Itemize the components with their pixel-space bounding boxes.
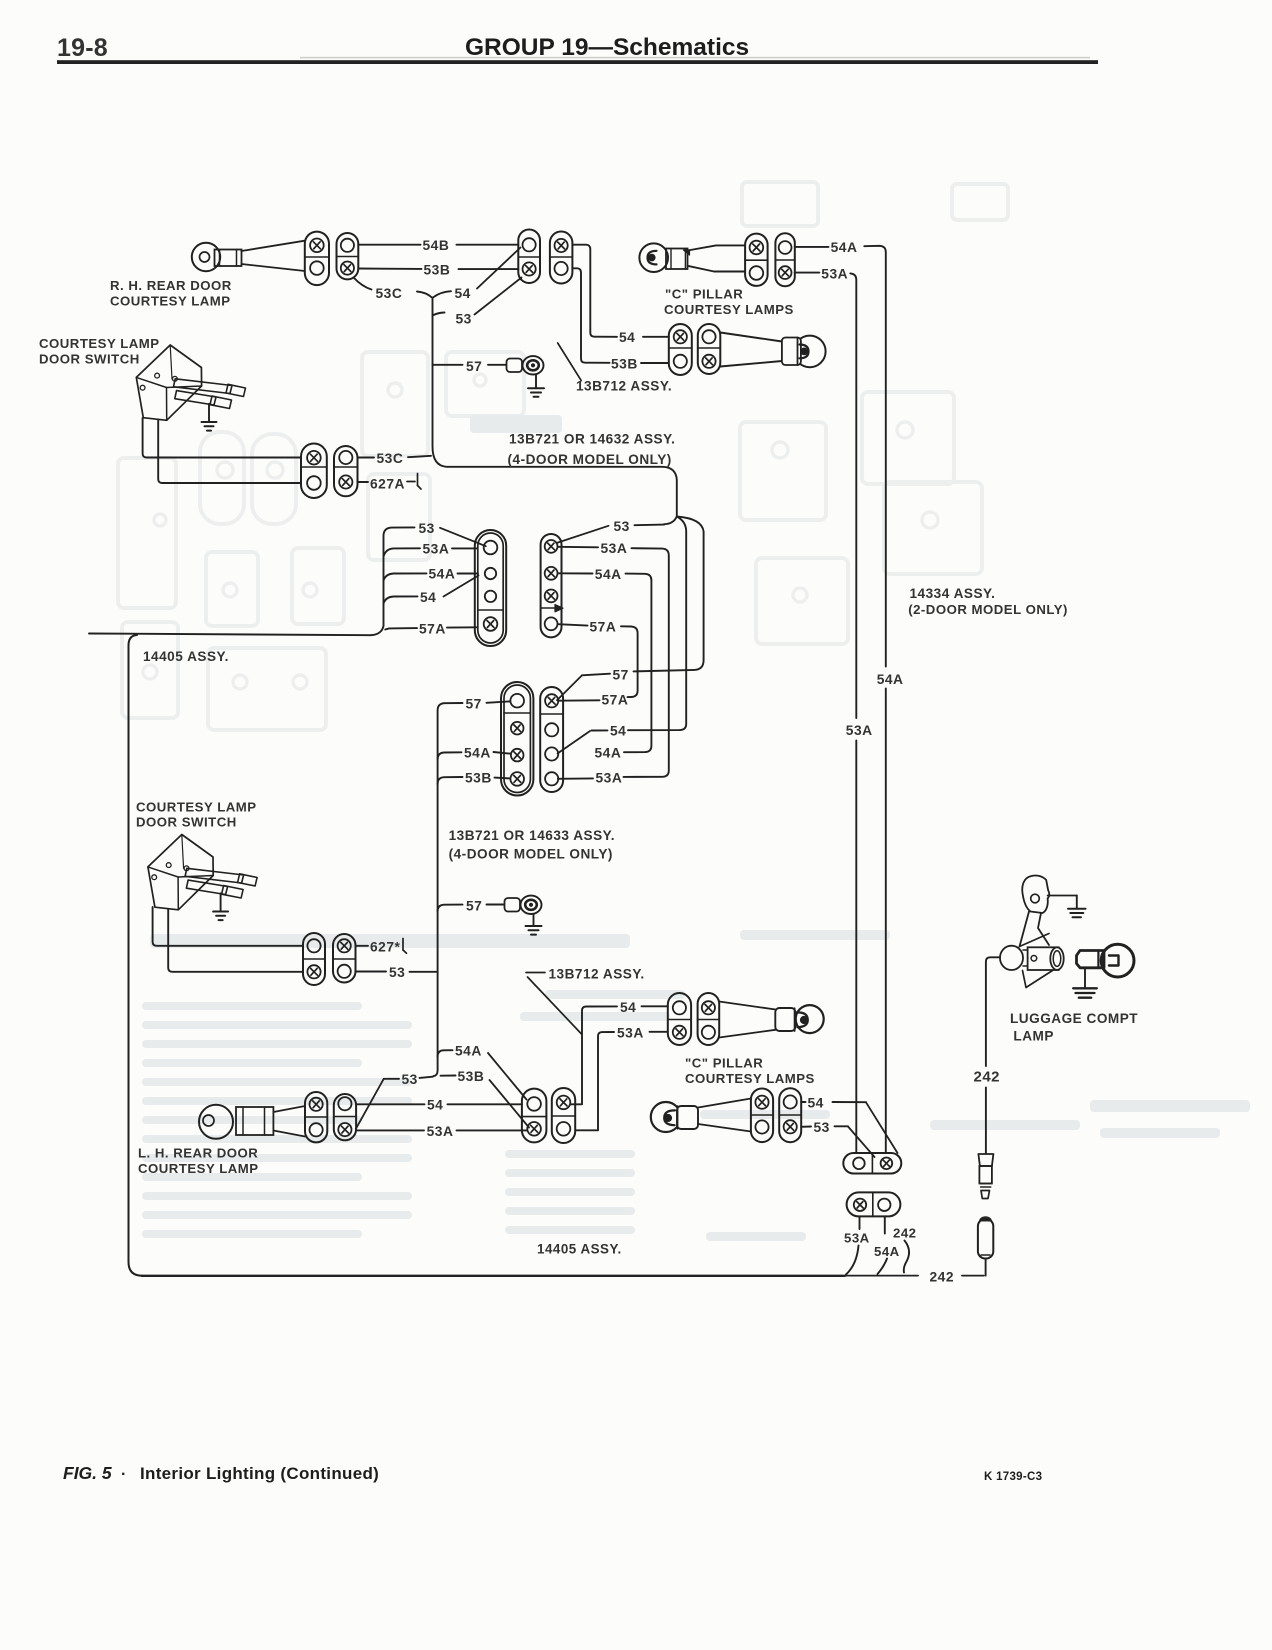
svg-text:COURTESY LAMPS: COURTESY LAMPS — [685, 1071, 815, 1086]
svg-text:(4-DOOR MODEL ONLY): (4-DOOR MODEL ONLY) — [508, 452, 672, 467]
svg-text:54: 54 — [619, 330, 635, 345]
svg-text:54A: 54A — [831, 240, 858, 255]
svg-text:13B712 ASSY.: 13B712 ASSY. — [549, 966, 645, 981]
svg-text:(2-DOOR MODEL ONLY): (2-DOOR MODEL ONLY) — [908, 602, 1068, 617]
svg-text:53B: 53B — [458, 1069, 485, 1084]
svg-text:DOOR SWITCH: DOOR SWITCH — [39, 352, 140, 367]
svg-text:(4-DOOR MODEL ONLY): (4-DOOR MODEL ONLY) — [449, 847, 613, 862]
svg-text:53: 53 — [389, 965, 405, 980]
svg-text:14405 ASSY.: 14405 ASSY. — [537, 1242, 622, 1257]
svg-text:54: 54 — [420, 590, 436, 605]
svg-text:54A: 54A — [464, 746, 491, 761]
svg-text:242: 242 — [974, 1069, 1001, 1086]
svg-text:57: 57 — [613, 668, 629, 683]
svg-text:54A: 54A — [455, 1043, 482, 1058]
svg-text:53A: 53A — [427, 1124, 454, 1139]
svg-text:14405 ASSY.: 14405 ASSY. — [143, 649, 229, 664]
svg-text:54: 54 — [427, 1098, 443, 1113]
svg-text:14334 ASSY.: 14334 ASSY. — [910, 586, 996, 601]
svg-text:53B: 53B — [465, 771, 492, 786]
svg-text:K 1739-C3: K 1739-C3 — [984, 1471, 1042, 1483]
svg-text:COURTESY LAMP: COURTESY LAMP — [110, 294, 231, 309]
svg-text:LUGGAGE COMPT: LUGGAGE COMPT — [1010, 1011, 1138, 1026]
svg-text:54A: 54A — [595, 567, 622, 582]
svg-text:57A: 57A — [590, 619, 617, 634]
svg-text:53: 53 — [814, 1120, 830, 1135]
svg-text:53A: 53A — [601, 541, 628, 556]
svg-text:"C" PILLAR: "C" PILLAR — [685, 1056, 763, 1071]
svg-text:57: 57 — [466, 697, 482, 712]
svg-text:57A: 57A — [419, 622, 446, 637]
svg-text:57A: 57A — [602, 692, 629, 707]
svg-text:54: 54 — [620, 1000, 636, 1015]
svg-text:FIG. 5: FIG. 5 — [63, 1463, 112, 1483]
svg-text:LAMP: LAMP — [1013, 1029, 1054, 1044]
svg-text:54A: 54A — [595, 746, 622, 761]
svg-text:L. H. REAR DOOR: L. H. REAR DOOR — [138, 1146, 258, 1161]
svg-text:54: 54 — [808, 1096, 824, 1111]
svg-text:54A: 54A — [874, 1244, 900, 1259]
svg-text:54A: 54A — [429, 567, 456, 582]
svg-text:54: 54 — [610, 724, 626, 739]
svg-text:DOOR SWITCH: DOOR SWITCH — [136, 815, 237, 830]
svg-text:53: 53 — [402, 1072, 418, 1087]
svg-text:R. H. REAR DOOR: R. H. REAR DOOR — [110, 278, 232, 293]
svg-text:242: 242 — [893, 1226, 917, 1241]
svg-text:53A: 53A — [596, 770, 623, 785]
svg-text:54: 54 — [455, 286, 471, 301]
svg-text:57: 57 — [466, 359, 482, 374]
svg-text:13B721 OR 14632 ASSY.: 13B721 OR 14632 ASSY. — [509, 432, 675, 447]
svg-text:53B: 53B — [611, 356, 638, 371]
svg-text:54A: 54A — [877, 672, 904, 687]
svg-text:53A: 53A — [423, 542, 450, 557]
svg-text:COURTESY LAMP: COURTESY LAMP — [39, 336, 160, 351]
svg-text:"C" PILLAR: "C" PILLAR — [665, 286, 743, 301]
svg-text:53A: 53A — [844, 1231, 870, 1246]
svg-text:54B: 54B — [423, 238, 450, 253]
svg-text:242: 242 — [930, 1270, 955, 1285]
svg-text:53A: 53A — [821, 266, 848, 281]
svg-text:·: · — [121, 1466, 126, 1483]
svg-text:13B712 ASSY.: 13B712 ASSY. — [576, 379, 672, 394]
svg-text:53C: 53C — [376, 286, 403, 301]
svg-text:COURTESY LAMP: COURTESY LAMP — [136, 800, 257, 815]
svg-text:53: 53 — [419, 521, 435, 536]
svg-text:13B721 OR 14633 ASSY.: 13B721 OR 14633 ASSY. — [449, 828, 615, 843]
svg-text:COURTESY LAMPS: COURTESY LAMPS — [664, 302, 794, 317]
svg-text:627A: 627A — [370, 476, 405, 491]
svg-text:53: 53 — [614, 519, 630, 534]
svg-text:19-8: 19-8 — [57, 34, 108, 62]
svg-text:53A: 53A — [846, 723, 873, 738]
svg-text:53: 53 — [456, 312, 472, 327]
svg-text:53B: 53B — [424, 262, 451, 277]
svg-text:53A: 53A — [617, 1026, 644, 1041]
svg-text:627*: 627* — [370, 939, 401, 954]
svg-text:53C: 53C — [377, 451, 404, 466]
svg-text:Interior Lighting (Continued): Interior Lighting (Continued) — [140, 1464, 379, 1483]
svg-text:57: 57 — [466, 898, 482, 913]
svg-text:COURTESY LAMP: COURTESY LAMP — [138, 1161, 259, 1176]
